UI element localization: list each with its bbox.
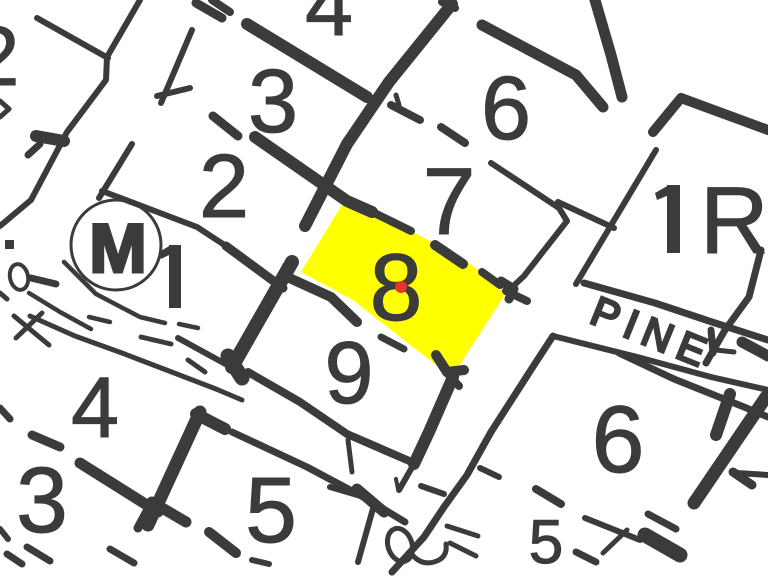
svg-text:R: R	[700, 168, 768, 274]
svg-text:4: 4	[71, 360, 119, 456]
svg-text:4: 4	[305, 0, 353, 54]
svg-text:5: 5	[245, 458, 297, 562]
svg-text:9: 9	[325, 323, 374, 422]
svg-text:3: 3	[16, 448, 68, 552]
svg-text:5: 5	[529, 508, 563, 576]
svg-text:M: M	[89, 210, 146, 287]
svg-text:2: 2	[199, 137, 249, 237]
svg-text:6: 6	[481, 59, 531, 159]
svg-text:2: 2	[0, 9, 19, 103]
svg-text:7: 7	[423, 149, 476, 255]
svg-text:3: 3	[248, 52, 298, 152]
svg-text:6: 6	[592, 387, 645, 493]
